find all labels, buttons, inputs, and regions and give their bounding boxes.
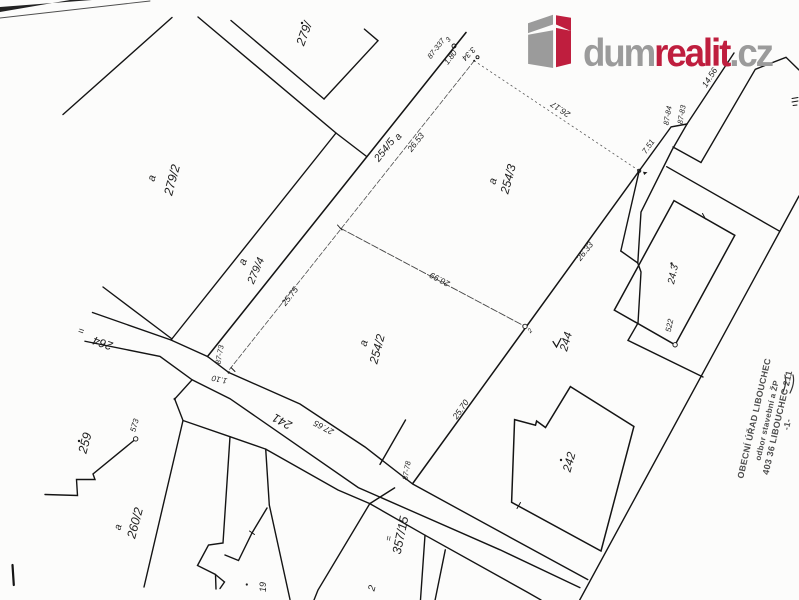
svg-text:a: a: [487, 177, 500, 186]
svg-text:=: =: [76, 325, 85, 337]
svg-text:279/4: 279/4: [245, 256, 267, 287]
svg-text:2: 2: [526, 327, 535, 335]
svg-text:dumrealit.cz: dumrealit.cz: [583, 31, 773, 74]
svg-text:a: a: [113, 523, 125, 532]
svg-text:357/15: 357/15: [390, 515, 412, 555]
svg-text:244: 244: [558, 331, 575, 354]
svg-text:26.33: 26.33: [574, 239, 596, 263]
svg-text:260/2: 260/2: [124, 506, 146, 541]
svg-text:522: 522: [664, 317, 676, 332]
svg-text:7.51: 7.51: [640, 138, 656, 156]
svg-text:264: 264: [91, 333, 116, 353]
svg-text:-1-: -1-: [781, 418, 793, 431]
svg-text:a: a: [146, 174, 159, 183]
svg-text:26.99: 26.99: [428, 270, 453, 289]
svg-text:25.75: 25.75: [279, 284, 301, 308]
svg-text:279/2: 279/2: [161, 163, 183, 198]
svg-text:254/3: 254/3: [497, 162, 519, 196]
svg-text:87-78: 87-78: [400, 460, 412, 481]
svg-text:25.70: 25.70: [450, 397, 471, 421]
svg-text:87-84: 87-84: [661, 105, 673, 125]
svg-text:26.17: 26.17: [548, 99, 572, 120]
svg-text:87-83: 87-83: [675, 104, 687, 125]
svg-text:27.65: 27.65: [312, 418, 337, 437]
svg-text:1.80: 1.80: [442, 48, 459, 66]
svg-text:a: a: [236, 257, 249, 267]
svg-text:254/5: 254/5: [371, 136, 397, 165]
svg-text:24.3: 24.3: [666, 263, 681, 286]
svg-text:254/2: 254/2: [366, 332, 388, 366]
svg-text:2: 2: [366, 584, 378, 594]
svg-text:a: a: [392, 131, 404, 143]
svg-text:26.53: 26.53: [405, 130, 427, 154]
svg-text:242: 242: [560, 450, 579, 474]
svg-text:573: 573: [129, 417, 141, 433]
svg-text:279/: 279/: [293, 18, 315, 48]
svg-text:1.10: 1.10: [210, 373, 228, 385]
svg-text:a: a: [358, 339, 371, 348]
svg-text:259: 259: [75, 431, 94, 456]
svg-text:19: 19: [258, 582, 268, 592]
